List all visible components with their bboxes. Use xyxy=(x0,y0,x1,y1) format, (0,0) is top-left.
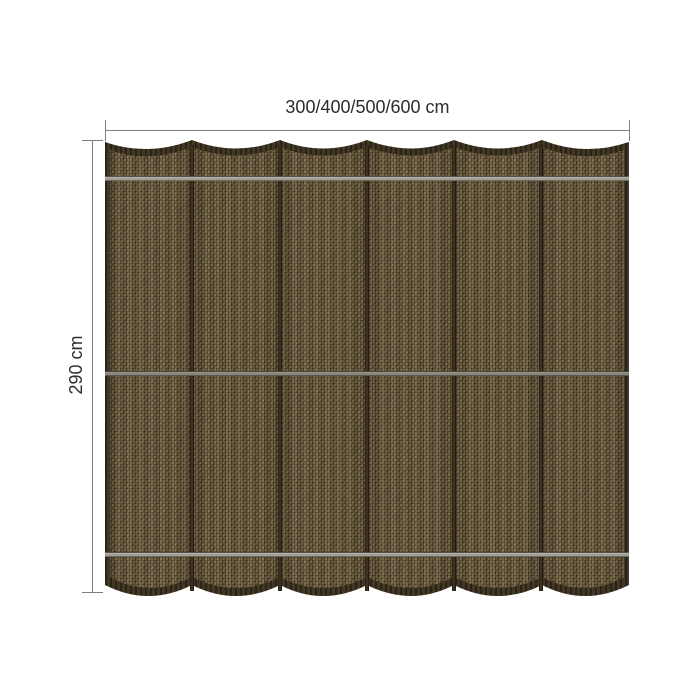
panel-seam xyxy=(365,145,369,591)
height-dimension-tick-top xyxy=(82,140,103,141)
height-dimension-tick-bottom xyxy=(82,592,103,593)
shade-cloth-illustration xyxy=(105,139,629,597)
width-dimension-tick-left xyxy=(105,120,106,141)
panel-seam xyxy=(190,145,194,591)
width-dimension-tick-right xyxy=(629,120,630,141)
height-dimension-label: 290 cm xyxy=(66,335,86,395)
panel-seam xyxy=(452,145,456,591)
panel-seam xyxy=(278,145,282,591)
width-dimension-line xyxy=(105,130,630,131)
support-rod-bottom xyxy=(105,552,629,557)
width-dimension-label: 300/400/500/600 cm xyxy=(105,97,630,117)
support-rod-middle xyxy=(105,371,629,376)
support-rod-top xyxy=(105,176,629,181)
diagram-canvas: 300/400/500/600 cm 290 cm xyxy=(0,0,700,700)
height-dimension-line xyxy=(92,140,93,593)
panel-seam xyxy=(539,145,543,591)
